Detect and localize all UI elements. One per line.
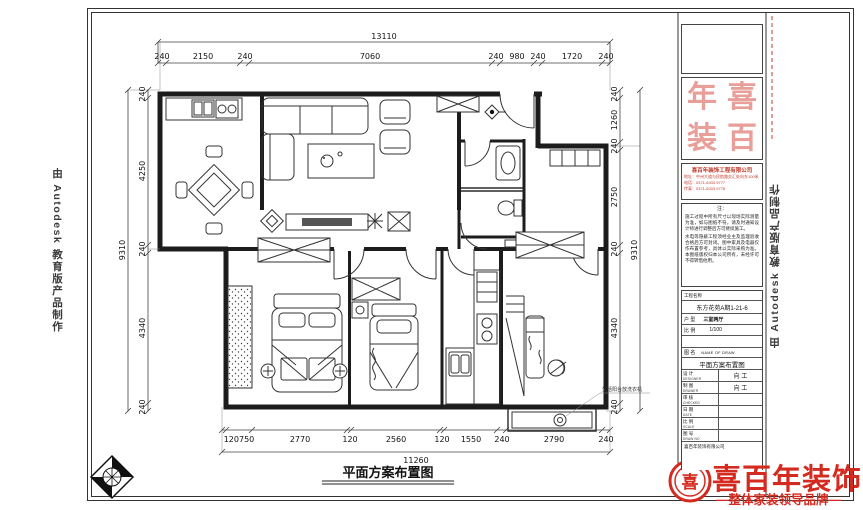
- drawing-sheet: 生活阳台放洗衣机 13110 240 2150 240 7060 240 980…: [0, 0, 863, 510]
- bathroom-fixtures: [461, 146, 522, 249]
- plan-caption: 平面方案布置图: [342, 465, 433, 480]
- table-row: 图 号DRAW NO: [682, 429, 762, 441]
- dim-right-1: 1260: [610, 110, 619, 130]
- type-value: 三室两厅: [703, 316, 723, 323]
- study-room: [506, 296, 566, 396]
- caption-underline: [322, 481, 454, 484]
- dim-bottom-2: 120: [342, 435, 357, 444]
- notes-header: 注：: [685, 206, 759, 213]
- table-row: 比 例SCALE: [682, 417, 762, 429]
- autodesk-watermark-left: 由 Autodesk 教育版产品制作: [50, 168, 65, 353]
- coffee-table: [308, 144, 374, 178]
- balcony-annotation: 生活阳台放洗衣机: [602, 386, 642, 393]
- dim-left-4: 240: [138, 399, 147, 414]
- dining-table: [176, 146, 253, 234]
- stamp-char-1: 年: [682, 78, 722, 119]
- tv-cabinet: [286, 214, 368, 230]
- table-row: 审 核CHECKED: [682, 393, 762, 405]
- armchairs: [380, 100, 410, 154]
- notes-paragraph-1: 施工过程中所有尺寸以现场实际测量为准，如与图纸不符，请及时通知设计师进行调整后方…: [685, 214, 759, 232]
- project-value: 东方花苑A期1-21-6: [682, 300, 762, 313]
- dim-top-7: 1720: [562, 52, 582, 61]
- utility-room: [516, 150, 600, 258]
- row-value: [719, 418, 762, 429]
- row-value: 向 工: [719, 382, 762, 393]
- dim-bottom-4: 120: [434, 435, 449, 444]
- dim-top-total: 13110: [371, 32, 396, 41]
- dim-top-2: 240: [237, 52, 252, 61]
- dim-bottom-3: 2560: [386, 435, 406, 444]
- dim-left-1: 4250: [138, 161, 147, 181]
- dim-left-2: 240: [138, 241, 147, 256]
- dim-bottom-6: 240: [494, 435, 509, 444]
- logo-tagline: —整体家装领导品牌—: [716, 489, 841, 508]
- dim-top-8: 240: [598, 52, 613, 61]
- dim-right-3: 2750: [610, 187, 619, 207]
- table-row: 制 图DRAWER 向 工: [682, 381, 762, 393]
- titleblock-footer: 喜百年装饰有限公司: [682, 441, 762, 451]
- empty-row: [682, 335, 762, 347]
- dim-bottom-7: 2790: [544, 435, 564, 444]
- project-label: 工程名称: [682, 291, 762, 300]
- shoe-cabinet: [437, 96, 479, 112]
- row-value: [719, 430, 762, 441]
- dim-bottom-1: 2770: [290, 435, 310, 444]
- dim-left-0: 240: [138, 86, 147, 101]
- stamp-char-3: 装: [682, 119, 722, 160]
- company-fax: 传真：0371-6333 9778: [684, 186, 760, 192]
- scale-label: 比 例: [684, 327, 695, 334]
- dim-top-3: 7060: [360, 52, 380, 61]
- stamp-char-4: 百: [722, 119, 762, 160]
- row-value: [719, 406, 762, 417]
- dim-bottom-8: 240: [598, 435, 613, 444]
- kitchenette-counter: [166, 98, 242, 120]
- dim-right-5: 4340: [610, 318, 619, 338]
- dim-right-6: 240: [610, 399, 619, 414]
- dim-right-2: 240: [610, 138, 619, 153]
- titleblock-stamp: 年 喜 装 百: [681, 77, 763, 160]
- table-row: 日 期DATE: [682, 405, 762, 417]
- dim-top-1: 2150: [193, 52, 213, 61]
- imgname-en: NAME OF DRAW: [701, 351, 734, 355]
- kitchen: [446, 270, 500, 404]
- titleblock-notes: 注： 施工过程中所有尺寸以现场实际测量为准，如与图纸不符，请及时通知设计师进行调…: [681, 203, 763, 287]
- table-row: 设 计DESIGNER 向 工: [682, 369, 762, 381]
- dim-left-3: 4340: [138, 318, 147, 338]
- rug: [388, 212, 410, 231]
- dim-left-total: 9310: [118, 240, 127, 260]
- dim-bottom-0: 120750: [224, 435, 255, 444]
- autodesk-watermark-right: 由 Autodesk 教育版产品制作: [767, 148, 782, 348]
- plan-walls: [160, 92, 609, 432]
- row-value: [719, 394, 762, 405]
- titleblock-drawing-title: 平面方案布置图: [682, 357, 762, 369]
- dim-right-0: 240: [610, 86, 619, 101]
- imgname-label: 图 名: [684, 349, 695, 356]
- second-bedroom: [352, 278, 418, 390]
- notes-paragraph-2: 水电等隐蔽工程须经业主及监理验收合格后方可封闭。图中家具及电器仅作布置参考，具体…: [685, 234, 759, 264]
- company-name: 喜百年装饰工程有限公司: [684, 166, 760, 174]
- logo-emblem-char: 喜: [682, 473, 699, 492]
- dim-top-6: 240: [530, 52, 545, 61]
- dim-bottom-5: 1550: [461, 435, 481, 444]
- scale-value: 1/100: [709, 327, 722, 333]
- plant: [367, 213, 383, 229]
- stamp-char-2: 喜: [722, 78, 762, 119]
- dim-top-5: 980: [509, 52, 524, 61]
- titleblock-empty-box: [681, 24, 763, 74]
- dim-top-4: 240: [488, 52, 503, 61]
- sofa: [262, 98, 368, 180]
- type-label: 户 型: [684, 316, 695, 323]
- titleblock-company-info: 喜百年装饰工程有限公司 地址：中州大道与民航路交汇处向东100米 电话：0371…: [681, 163, 763, 200]
- master-bedroom: [228, 238, 347, 392]
- dim-bottom-total: 11260: [403, 456, 428, 465]
- dim-right-total: 9310: [630, 240, 639, 260]
- dim-top-0: 240: [154, 52, 169, 61]
- row-value: 向 工: [719, 370, 762, 381]
- titleblock-fields: 工程名称 东方花苑A期1-21-6 户 型 三室两厅 比 例 1/100 图 名…: [681, 290, 763, 470]
- speaker: [261, 210, 284, 233]
- compass-icon: [91, 456, 133, 498]
- dim-right-4: 240: [610, 241, 619, 256]
